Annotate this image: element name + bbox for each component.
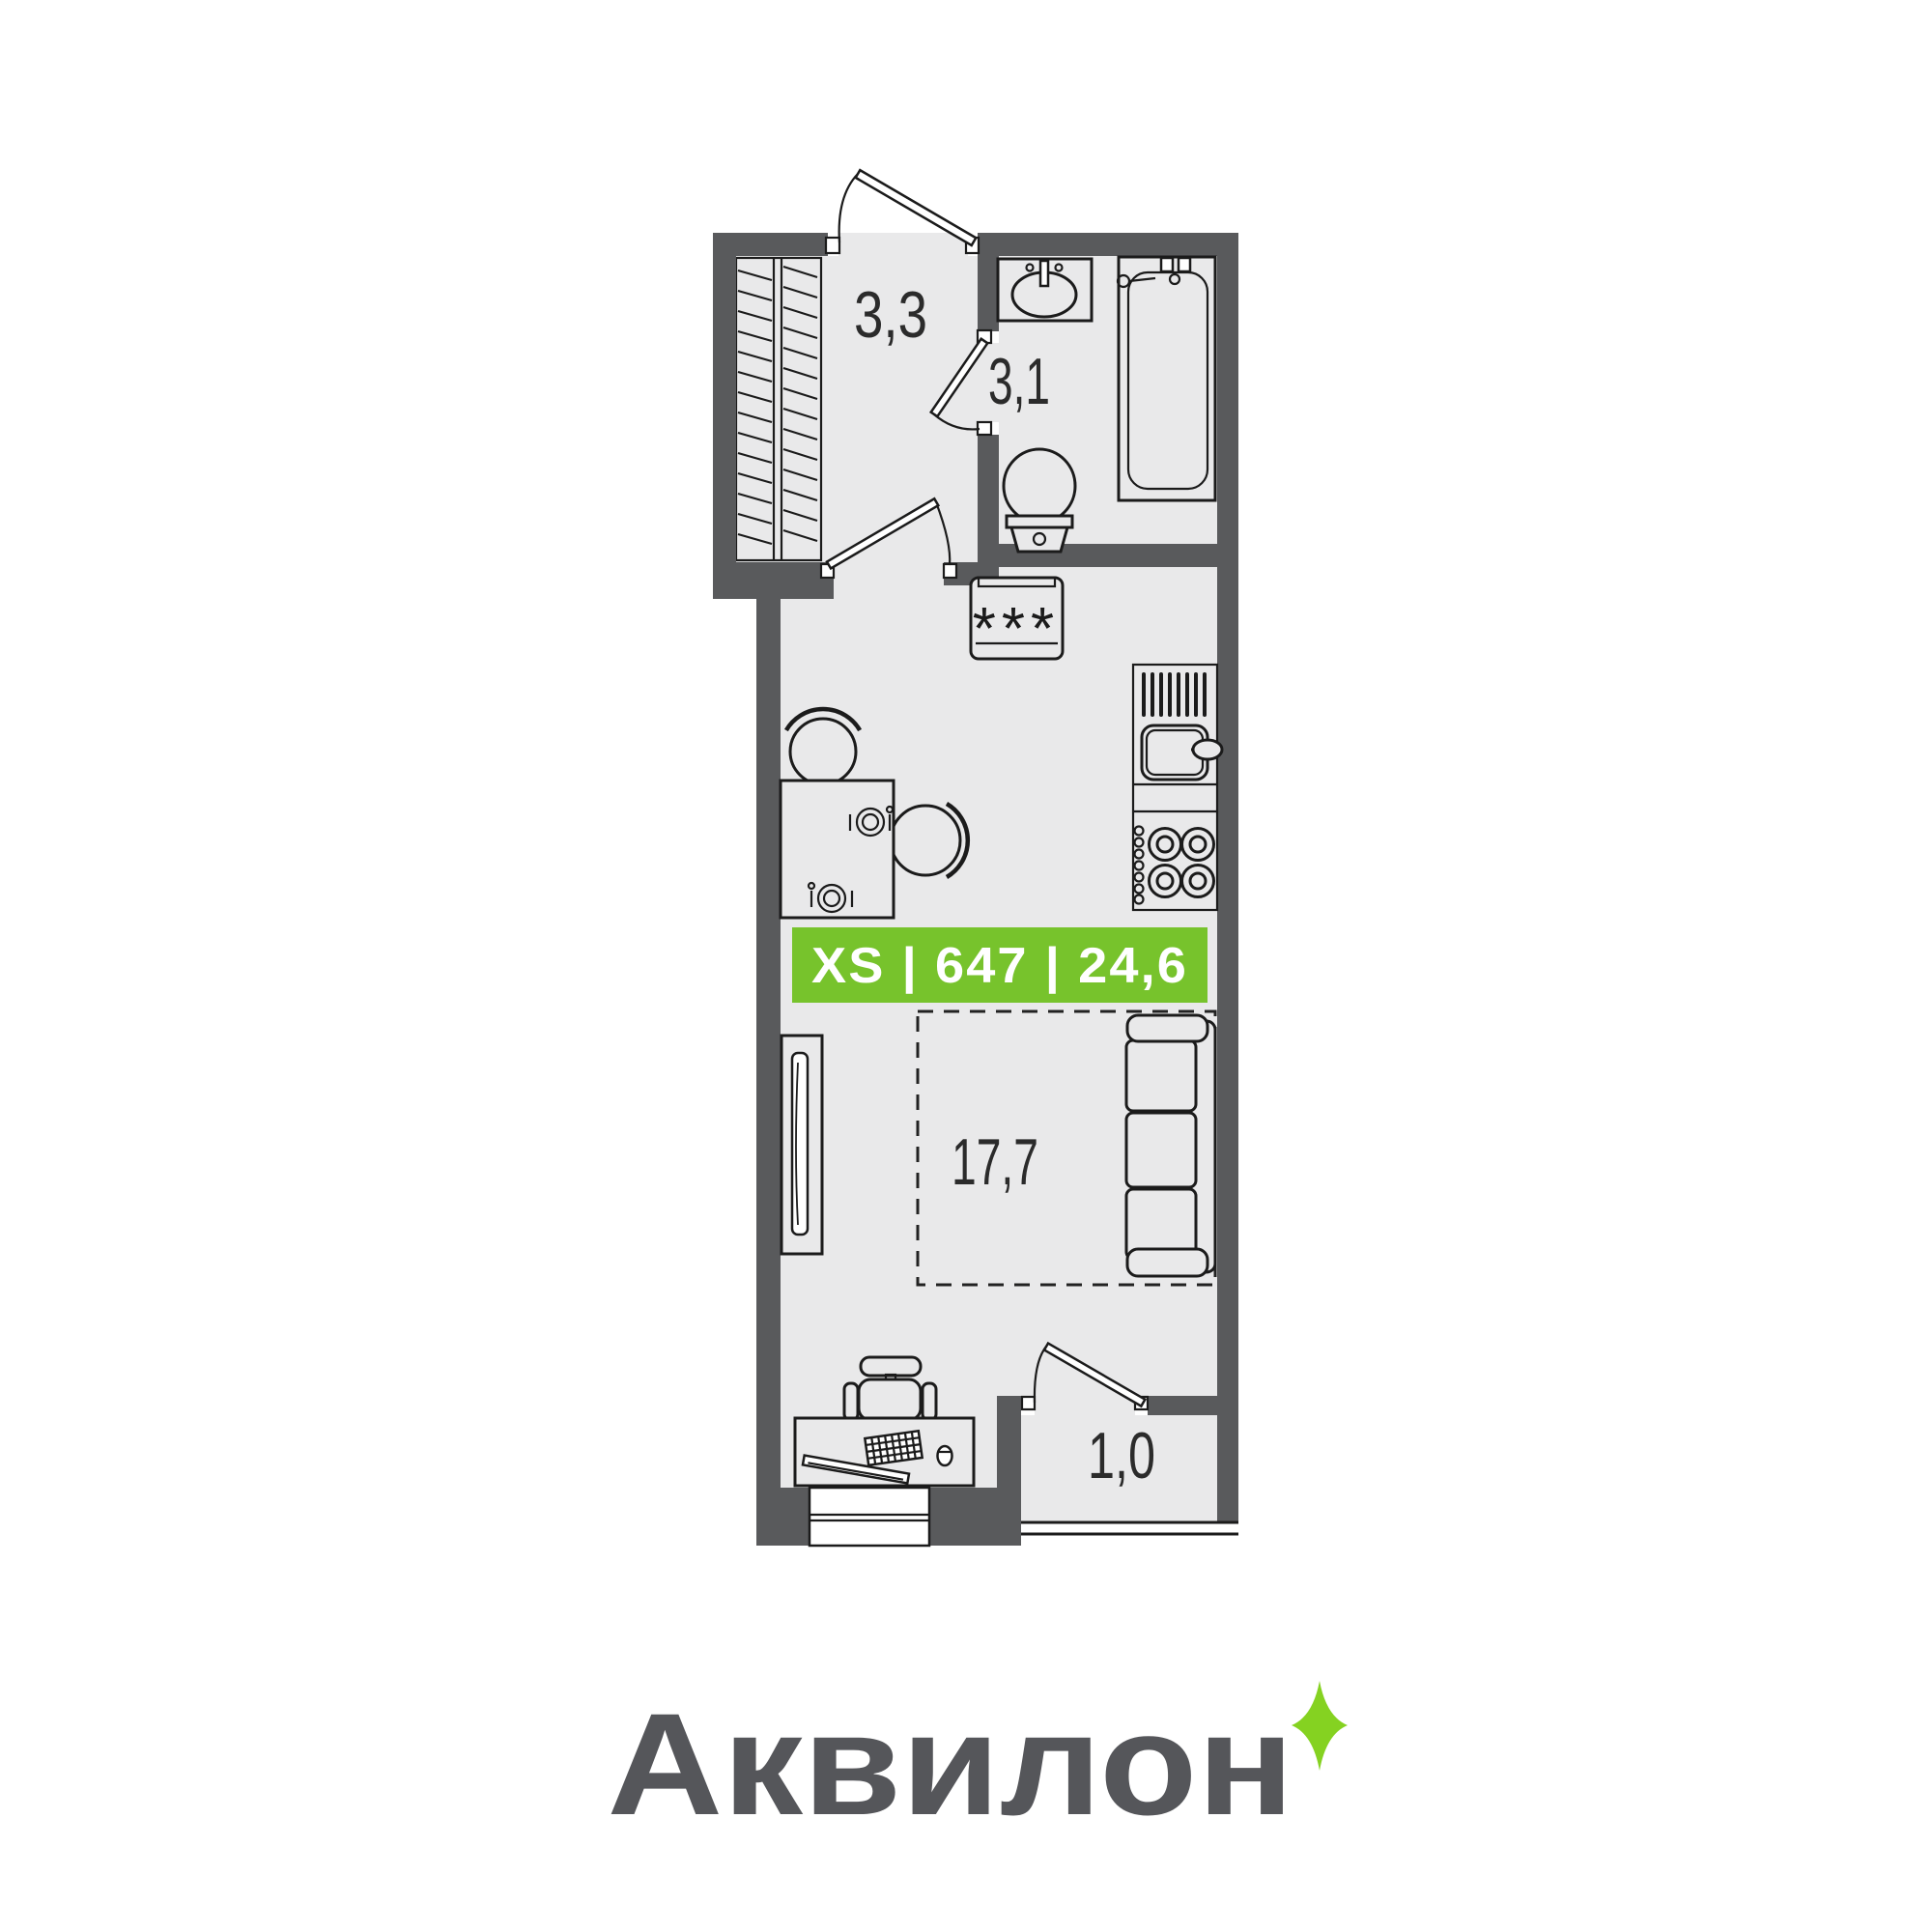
- sink-faucet: [1040, 261, 1048, 286]
- wall-top-right: [978, 233, 1238, 256]
- badge-label: XS | 647 | 24,6: [811, 938, 1188, 994]
- wall-bottom-left: [756, 1488, 810, 1546]
- balcony-opening: [1035, 1396, 1135, 1415]
- wall-bathroom-bottom: [978, 544, 1217, 567]
- floor-plan-page: ***: [0, 0, 1932, 1932]
- desk: [795, 1418, 974, 1486]
- sofa-cushion: [1126, 1040, 1196, 1111]
- wall-right-outer: [1217, 233, 1238, 1534]
- living-area-label: 17,7: [952, 1125, 1038, 1199]
- door-jamb: [1022, 1397, 1035, 1409]
- living-opening: [834, 562, 944, 584]
- sofa-cushion: [1126, 1113, 1196, 1187]
- logo-text: Аквилон: [608, 1683, 1294, 1845]
- kitchen-faucet: [1193, 740, 1222, 759]
- bathroom-area-label: 3,1: [988, 345, 1050, 418]
- keyboard-icon: [865, 1431, 922, 1465]
- tv-unit: [781, 1036, 822, 1254]
- balcony-railing: [1021, 1522, 1238, 1534]
- floor-plan: ***: [0, 0, 1932, 1932]
- toilet-tank: [1011, 527, 1067, 552]
- chair-seat: [859, 1379, 921, 1420]
- wall-balcony-door-right: [1148, 1396, 1217, 1415]
- window: [810, 1488, 929, 1546]
- brand-logo: Аквилон: [608, 1681, 1349, 1845]
- area-badge: XS | 647 | 24,6: [792, 927, 1207, 1003]
- mouse-icon: [938, 1446, 952, 1465]
- sofa-armrest: [1127, 1015, 1207, 1041]
- entry-opening: [838, 233, 968, 256]
- chair-headrest: [861, 1357, 921, 1376]
- door-jamb: [978, 422, 991, 435]
- wall-left-living: [756, 576, 781, 1546]
- dining-table: [781, 781, 894, 918]
- chair-armrest: [923, 1383, 936, 1420]
- chair-armrest: [844, 1383, 858, 1420]
- toilet-tank-top: [1007, 516, 1072, 527]
- washing-machine-label: ***: [973, 596, 1060, 663]
- wall-bathroom-left-upper: [978, 256, 999, 331]
- entrance-area-label: 3,3: [854, 278, 927, 352]
- sofa-armrest: [1127, 1249, 1207, 1276]
- door-swing-arc: [839, 174, 858, 242]
- bathtub-faucet: [1179, 258, 1190, 271]
- wall-left-wardrobe: [713, 233, 736, 599]
- bathtub-faucet: [1161, 258, 1173, 271]
- railing-band: [1021, 1522, 1238, 1534]
- sofa: [1126, 1015, 1215, 1276]
- door-jamb: [826, 238, 839, 253]
- sparkle-icon: [1292, 1681, 1348, 1771]
- door-jamb: [944, 564, 956, 578]
- washing-machine: ***: [971, 578, 1063, 663]
- balcony-area-label: 1,0: [1088, 1419, 1155, 1492]
- toilet: [1004, 449, 1075, 552]
- toilet-bowl: [1004, 449, 1075, 523]
- tv-screen: [792, 1053, 808, 1235]
- window-frame: [810, 1488, 929, 1546]
- wall-balcony-left: [997, 1396, 1021, 1546]
